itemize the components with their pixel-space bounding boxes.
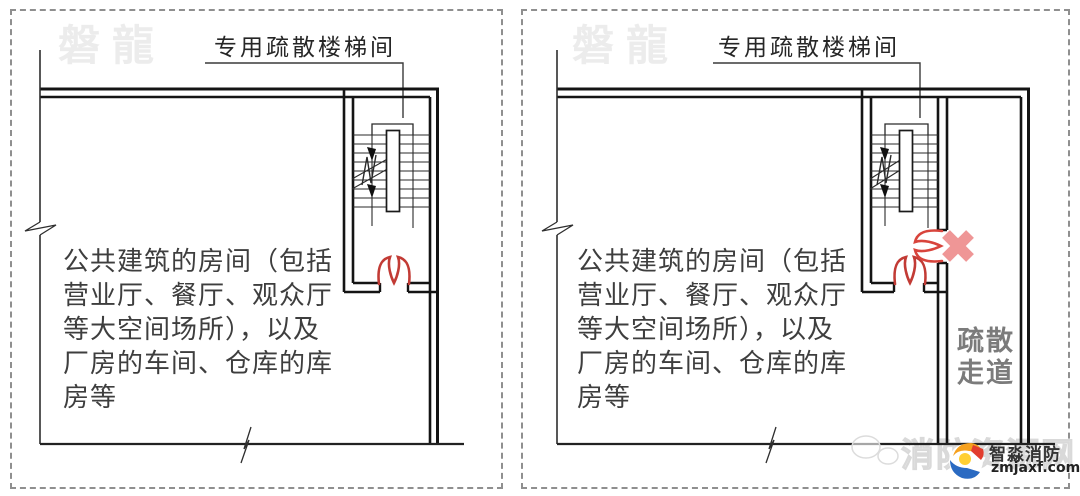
corridor-label: 疏散 走道 (957, 325, 1015, 389)
stairwell-label: 专用疏散楼梯间 (214, 28, 396, 62)
stair-direction-arrow (367, 184, 376, 198)
stairwell-wall (862, 283, 947, 292)
wall-break-symbol (542, 222, 573, 235)
watermark-cloud-icon (878, 448, 898, 464)
brand-logo-icon (949, 443, 984, 479)
stair-direction-arrow (880, 184, 889, 198)
stairwell-corridor-wall (938, 97, 947, 444)
stair-handrail (900, 131, 913, 212)
room-description-text: 公共建筑的房间（包括 营业厅、餐厅、观众厅 等大空间场所），以及 厂房的车间、仓… (63, 245, 333, 415)
stairwell-wall (862, 89, 871, 292)
fire-evacuation-diagram: { "panels": [ { "watermark": "磐龍", "stai… (0, 0, 1080, 496)
stair-handrail (387, 131, 400, 212)
stairwell-wall (344, 283, 438, 292)
footer-brand-graphics (852, 436, 984, 479)
wall-break-symbol (25, 222, 56, 235)
watermark-cloud-icon (852, 436, 880, 458)
double-door-swing-icon (915, 230, 942, 261)
double-door-swing-icon (894, 257, 925, 284)
brand-url-text: zmjaxf.com (991, 460, 1080, 476)
stairwell-label: 专用疏散楼梯间 (718, 28, 900, 62)
double-door-swing-icon (378, 257, 409, 284)
room-description-text: 公共建筑的房间（包括 营业厅、餐厅、观众厅 等大空间场所），以及 厂房的车间、仓… (577, 245, 847, 415)
stairwell-wall (344, 89, 353, 292)
